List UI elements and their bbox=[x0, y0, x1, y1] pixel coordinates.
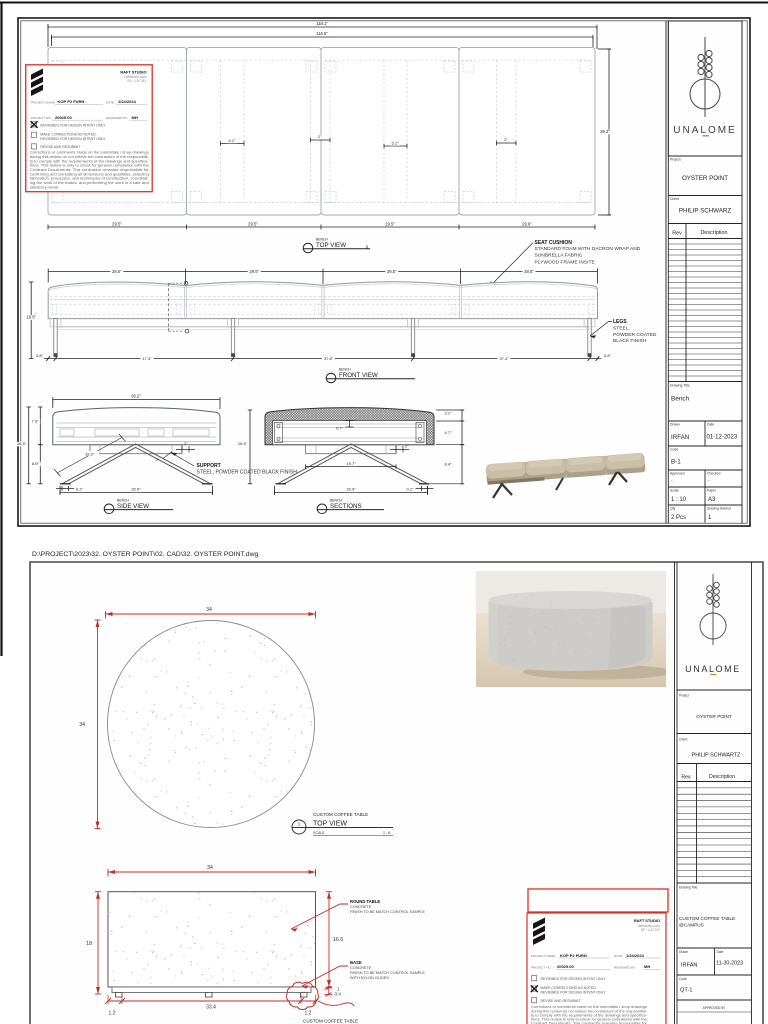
svg-text:A3: A3 bbox=[708, 497, 716, 503]
svg-text:1/24/2024: 1/24/2024 bbox=[626, 953, 645, 958]
svg-text:STEEL,: STEEL, bbox=[613, 326, 630, 332]
svg-text:SUPPORT: SUPPORT bbox=[197, 463, 221, 469]
svg-text:SUNBRELLA FABRIC: SUNBRELLA FABRIC bbox=[535, 253, 583, 259]
svg-text:Rev: Rev bbox=[672, 231, 682, 237]
svg-text:STANDARD FOAM WITH DACRON WRAP: STANDARD FOAM WITH DACRON WRAP AND bbox=[535, 246, 641, 252]
svg-text:KOP P2 FURN: KOP P2 FURN bbox=[58, 99, 85, 104]
svg-text:29.6": 29.6" bbox=[522, 222, 532, 227]
svg-text:QT-1: QT-1 bbox=[680, 988, 692, 994]
svg-text:REVIEWED FOR DESIGN INTENT ONL: REVIEWED FOR DESIGN INTENT ONLY bbox=[541, 977, 607, 981]
svg-text:BENCH: BENCH bbox=[339, 368, 351, 372]
svg-text:SEAT CUSHION: SEAT CUSHION bbox=[535, 240, 573, 246]
svg-text:29.5": 29.5" bbox=[112, 222, 122, 227]
svg-text:0.2": 0.2" bbox=[76, 486, 84, 491]
svg-text:SF / LA / NY: SF / LA / NY bbox=[641, 928, 661, 932]
svg-text:8.6": 8.6" bbox=[32, 461, 40, 466]
svg-text:2": 2" bbox=[184, 441, 188, 446]
svg-text:19.7": 19.7" bbox=[346, 461, 356, 466]
svg-text:SIDE VIEW: SIDE VIEW bbox=[117, 503, 149, 510]
svg-text:Drawing Title: Drawing Title bbox=[679, 886, 698, 890]
svg-text:SECTIONS: SECTIONS bbox=[330, 503, 362, 510]
svg-text:DATE:: DATE: bbox=[614, 954, 623, 958]
svg-text:Date: Date bbox=[707, 423, 714, 427]
svg-text:1 : 10: 1 : 10 bbox=[671, 497, 687, 503]
svg-text:CUSTOM COFFEE TABLE: CUSTOM COFFEE TABLE bbox=[303, 1019, 358, 1024]
svg-text:D:\PROJECT\2023\32. OYSTER POI: D:\PROJECT\2023\32. OYSTER POINT\02. CAD… bbox=[32, 551, 258, 558]
svg-text:29.5": 29.5" bbox=[387, 269, 397, 274]
svg-text:Qty: Qty bbox=[670, 506, 676, 510]
svg-text:UNALOME: UNALOME bbox=[673, 125, 736, 136]
svg-text:WITH NYLON GLIDES: WITH NYLON GLIDES bbox=[350, 976, 389, 980]
svg-text:0.8": 0.8" bbox=[36, 353, 44, 358]
svg-text:REVISE AND RESUBMIT: REVISE AND RESUBMIT bbox=[541, 999, 582, 1003]
svg-text:7.9": 7.9" bbox=[32, 419, 40, 424]
svg-text:Drawn: Drawn bbox=[679, 950, 688, 954]
svg-text:PROJECT NAME:: PROJECT NAME: bbox=[31, 100, 56, 104]
svg-text:CONCRETE: CONCRETE bbox=[350, 966, 372, 970]
svg-text:Date: Date bbox=[717, 950, 724, 954]
svg-text:2": 2" bbox=[156, 457, 160, 462]
svg-text:Checked: Checked bbox=[707, 471, 720, 475]
svg-text:29.5": 29.5" bbox=[249, 269, 259, 274]
svg-text:MH: MH bbox=[132, 115, 138, 120]
svg-text:5.1": 5.1" bbox=[392, 140, 400, 145]
svg-text:DATE:: DATE: bbox=[106, 100, 115, 104]
svg-text:REVIEWED BY:: REVIEWED BY: bbox=[614, 965, 636, 969]
svg-text:Drawing Title: Drawing Title bbox=[670, 384, 690, 388]
svg-text:@CAMPUS: @CAMPUS bbox=[679, 923, 704, 928]
svg-text:FINISH TO BE MATCH CONTROL SAM: FINISH TO BE MATCH CONTROL SAMPLE bbox=[350, 910, 425, 914]
svg-text:Paper: Paper bbox=[707, 488, 717, 492]
svg-text:LEGS: LEGS bbox=[613, 319, 627, 325]
svg-text:BENCH: BENCH bbox=[316, 238, 328, 242]
svg-text:0.7": 0.7" bbox=[336, 426, 344, 431]
svg-text:B-1: B-1 bbox=[671, 459, 681, 466]
svg-text:29.5": 29.5" bbox=[248, 222, 258, 227]
svg-text:MH: MH bbox=[644, 964, 650, 969]
svg-text:18: 18 bbox=[86, 941, 92, 947]
svg-text:0.8": 0.8" bbox=[604, 353, 612, 358]
svg-text:STEEL, POWDER COATED BLACK FIN: STEEL, POWDER COATED BLACK FINISH bbox=[197, 469, 298, 475]
svg-text:Project: Project bbox=[679, 694, 689, 698]
svg-text:REVIEWED FOR DESIGN INTENT ONL: REVIEWED FOR DESIGN INTENT ONLY bbox=[541, 991, 607, 995]
svg-text:Drawing Number: Drawing Number bbox=[707, 506, 732, 510]
svg-text:2": 2" bbox=[504, 137, 508, 142]
svg-text:REVIEWED FOR DESIGN INTENT ONL: REVIEWED FOR DESIGN INTENT ONLY bbox=[40, 137, 106, 141]
svg-text:1.2: 1.2 bbox=[305, 1011, 312, 1017]
svg-text:33.4: 33.4 bbox=[206, 1005, 216, 1011]
svg-text:TOP VIEW: TOP VIEW bbox=[316, 242, 346, 249]
svg-text:17.4": 17.4" bbox=[142, 356, 152, 361]
svg-text:RAFT STUDIO: RAFT STUDIO bbox=[120, 69, 146, 74]
svg-text:32.9": 32.9" bbox=[346, 487, 356, 492]
svg-text:CUSTOM COFFEE TABLE: CUSTOM COFFEE TABLE bbox=[313, 812, 368, 817]
svg-text:OYSTER POINT: OYSTER POINT bbox=[682, 175, 728, 182]
svg-text:Code: Code bbox=[670, 448, 678, 452]
svg-text:Bench: Bench bbox=[671, 396, 690, 403]
svg-text:16.5": 16.5" bbox=[26, 315, 36, 320]
svg-text:MAKE CORRECTIONS AS NOTED.: MAKE CORRECTIONS AS NOTED. bbox=[541, 986, 597, 990]
svg-text:Description: Description bbox=[701, 230, 728, 236]
svg-text:RAFT STUDIO: RAFT STUDIO bbox=[634, 918, 660, 923]
svg-text:0.4: 0.4 bbox=[335, 992, 342, 997]
svg-text:Client: Client bbox=[679, 738, 687, 742]
svg-text:29.5": 29.5" bbox=[385, 222, 395, 227]
svg-text:FINISH TO BE MATCH CONTROL SAM: FINISH TO BE MATCH CONTROL SAMPLE bbox=[350, 971, 425, 975]
svg-text:5.1": 5.1" bbox=[229, 138, 237, 143]
svg-text:0.2": 0.2" bbox=[407, 486, 415, 491]
svg-text:1.2: 1.2 bbox=[109, 1011, 116, 1017]
svg-text:PROJECT NO.:: PROJECT NO.: bbox=[531, 965, 553, 969]
svg-text:29.5": 29.5" bbox=[112, 269, 122, 274]
svg-text:BENCH: BENCH bbox=[330, 499, 342, 503]
svg-text:UNALOME: UNALOME bbox=[685, 664, 741, 674]
svg-text:37.8": 37.8" bbox=[324, 356, 334, 361]
svg-text:01-12-2023: 01-12-2023 bbox=[707, 435, 738, 441]
svg-text:29.5": 29.5" bbox=[524, 269, 534, 274]
svg-text:Approved: Approved bbox=[670, 471, 685, 475]
svg-text:20029.00: 20029.00 bbox=[55, 115, 72, 120]
svg-text:CONCRETE: CONCRETE bbox=[350, 905, 372, 909]
svg-text:3.1": 3.1" bbox=[445, 411, 453, 416]
svg-text:REVISE AND RESUBMIT: REVISE AND RESUBMIT bbox=[40, 145, 81, 149]
svg-text:34: 34 bbox=[79, 722, 85, 728]
svg-text:MAKE CORRECTIONS AS NOTED.: MAKE CORRECTIONS AS NOTED. bbox=[40, 132, 96, 136]
svg-text:Scale: Scale bbox=[670, 488, 679, 492]
svg-text:IRFAN: IRFAN bbox=[671, 434, 689, 441]
svg-text:34: 34 bbox=[206, 607, 212, 613]
svg-text:20029.00: 20029.00 bbox=[557, 964, 574, 969]
svg-text:SF / LA / NY: SF / LA / NY bbox=[127, 79, 147, 83]
svg-text:Code: Code bbox=[679, 977, 687, 981]
svg-text:SCALE: SCALE bbox=[313, 831, 325, 835]
svg-text:2": 2" bbox=[405, 444, 409, 449]
svg-text:Client: Client bbox=[670, 197, 679, 201]
svg-text:PROJECT NAME:: PROJECT NAME: bbox=[531, 954, 556, 958]
svg-text:2": 2" bbox=[318, 134, 322, 139]
svg-text:satisfactory manner.: satisfactory manner. bbox=[30, 185, 60, 189]
svg-text:PROJECT NO.:: PROJECT NO.: bbox=[31, 116, 53, 120]
svg-text:Description: Description bbox=[709, 774, 735, 780]
svg-text:REVIEWED BY:: REVIEWED BY: bbox=[106, 116, 128, 120]
svg-text:1 : 8: 1 : 8 bbox=[383, 831, 390, 835]
svg-text:32.9": 32.9" bbox=[131, 487, 141, 492]
svg-text:36.2": 36.2" bbox=[600, 129, 610, 134]
svg-text:ROUND TABLE: ROUND TABLE bbox=[350, 899, 380, 904]
svg-text:BENCH: BENCH bbox=[117, 499, 129, 503]
svg-text:OYSTER POINT: OYSTER POINT bbox=[696, 714, 732, 720]
svg-text:IRFAN: IRFAN bbox=[681, 963, 697, 969]
svg-text:KOP P2 FURN: KOP P2 FURN bbox=[560, 953, 587, 958]
svg-text:36.2": 36.2" bbox=[131, 394, 141, 399]
svg-text:FRONT VIEW: FRONT VIEW bbox=[339, 372, 378, 379]
svg-text:Drawn: Drawn bbox=[670, 423, 680, 427]
svg-text:2 Pcs: 2 Pcs bbox=[671, 515, 686, 521]
svg-text:Project: Project bbox=[670, 158, 681, 162]
svg-text:PHILIP SCHWARZ: PHILIP SCHWARZ bbox=[679, 208, 731, 215]
svg-text:34: 34 bbox=[207, 865, 213, 871]
svg-text:APPROVED BY: APPROVED BY bbox=[703, 1006, 727, 1010]
svg-text:BASE: BASE bbox=[350, 960, 362, 965]
svg-text:16.6: 16.6 bbox=[333, 937, 343, 943]
svg-text:BLACK FINISH: BLACK FINISH bbox=[613, 338, 647, 344]
svg-text:REVIEWED FOR DESIGN INTENT ONL: REVIEWED FOR DESIGN INTENT ONLY bbox=[40, 123, 106, 127]
svg-text:16.5": 16.5" bbox=[238, 441, 248, 446]
svg-text:4.7": 4.7" bbox=[445, 430, 453, 435]
svg-text:PLYWOOD FRAME INSITE: PLYWOOD FRAME INSITE bbox=[535, 259, 596, 265]
svg-text:Rev: Rev bbox=[681, 775, 691, 781]
svg-text:116.5": 116.5" bbox=[316, 31, 328, 36]
svg-text:1/24/2024: 1/24/2024 bbox=[118, 99, 137, 104]
svg-text:TOP VIEW: TOP VIEW bbox=[313, 821, 347, 828]
svg-text:18.3": 18.3" bbox=[85, 452, 95, 457]
svg-text:11-30-2023: 11-30-2023 bbox=[716, 961, 743, 967]
svg-text:118.1": 118.1" bbox=[316, 21, 328, 26]
svg-text:PHILIP SCHWARTZ: PHILIP SCHWARTZ bbox=[692, 753, 741, 759]
svg-text:8.4": 8.4" bbox=[445, 462, 453, 467]
svg-text:37.4": 37.4" bbox=[499, 356, 509, 361]
svg-text:16.5": 16.5" bbox=[17, 441, 27, 446]
svg-text:POWDER COATED: POWDER COATED bbox=[613, 332, 657, 338]
svg-text:CUSTOM COFFEE TABLE: CUSTOM COFFEE TABLE bbox=[679, 916, 735, 921]
